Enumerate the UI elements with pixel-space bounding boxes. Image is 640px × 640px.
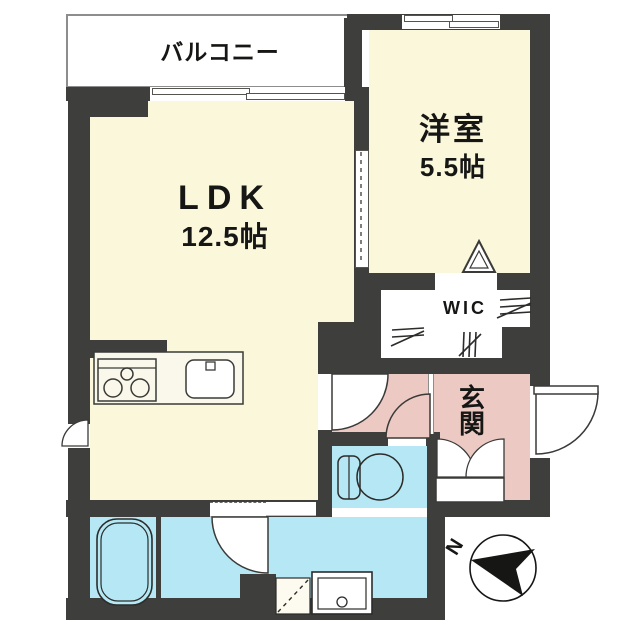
wic-label: WIC <box>438 297 492 319</box>
genkan-step-strip <box>428 374 434 434</box>
ldk-western-sliding-door <box>355 150 369 268</box>
bathroom-area <box>90 517 156 598</box>
ldk-area-size: 12.5帖 <box>155 218 295 252</box>
toilet-door-opening <box>388 432 426 446</box>
toilet-area <box>332 446 427 508</box>
compass-arrow <box>471 549 535 596</box>
wall-bath-divider <box>156 517 161 598</box>
wall-washer-block <box>240 574 276 598</box>
western-room-area-size: 5.5帖 <box>393 148 513 182</box>
washroom-door-opening-b <box>266 502 316 516</box>
western-room-window-panel-2 <box>449 21 499 28</box>
wall-bottom <box>66 598 445 620</box>
balcony-label: バルコニー <box>140 36 300 64</box>
wall-step-right <box>427 500 550 517</box>
floor-plan: バルコニー LDK 12.5帖 洋室 5.5帖 WIC 玄関 N <box>0 0 640 640</box>
wall-hall-top <box>367 358 550 374</box>
washroom-door-opening-a <box>210 502 266 517</box>
western-room-window-panel-1 <box>404 15 453 22</box>
compass-circle <box>470 535 536 601</box>
genkan-label: 玄関 <box>455 378 487 442</box>
ldk-label: LDK <box>155 180 295 216</box>
balcony-slider-panel-1 <box>152 88 250 95</box>
hall-area <box>332 374 430 434</box>
wall-kitchen-stub <box>84 340 167 358</box>
washroom-area <box>161 517 427 598</box>
wic-door-opening <box>435 273 497 290</box>
balcony-slider-panel-2 <box>246 93 345 100</box>
entrance-door-opening <box>530 386 550 458</box>
ldk-hall-door-opening <box>318 374 332 430</box>
western-room-label: 洋室 <box>393 108 513 144</box>
left-service-door-opening <box>66 424 90 448</box>
